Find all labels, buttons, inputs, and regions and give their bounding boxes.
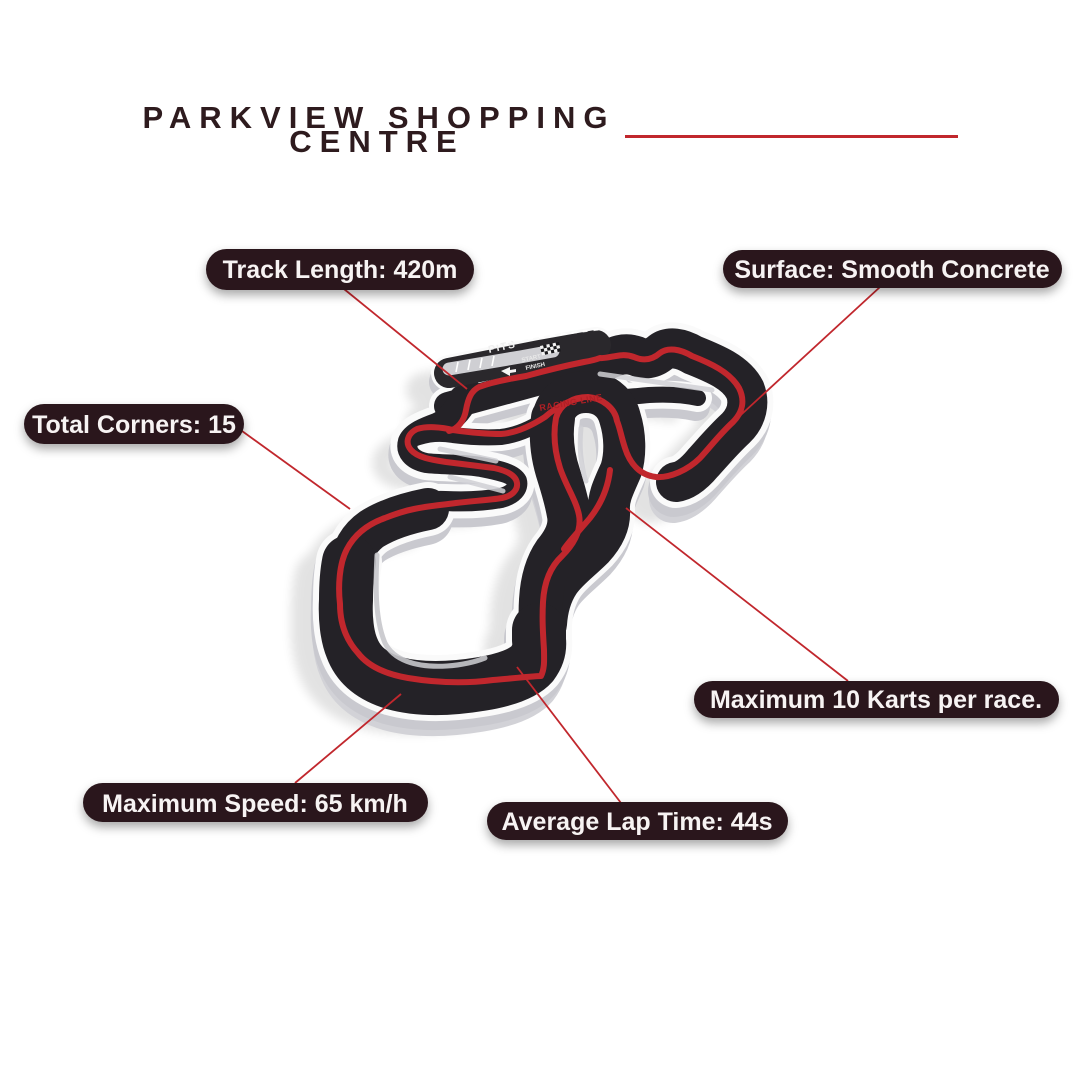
svg-text:Surface: Smooth Concrete: Surface: Smooth Concrete xyxy=(734,256,1049,284)
svg-text:Maximum Speed: 65 km/h: Maximum Speed: 65 km/h xyxy=(102,790,408,818)
svg-text:Average Lap Time: 44s: Average Lap Time: 44s xyxy=(502,808,773,836)
svg-text:CENTRE: CENTRE xyxy=(289,124,464,159)
svg-text:Track Length: 420m: Track Length: 420m xyxy=(223,256,458,284)
svg-text:Total Corners: 15: Total Corners: 15 xyxy=(32,411,236,439)
svg-text:Maximum 10 Karts per race.: Maximum 10 Karts per race. xyxy=(710,686,1042,714)
